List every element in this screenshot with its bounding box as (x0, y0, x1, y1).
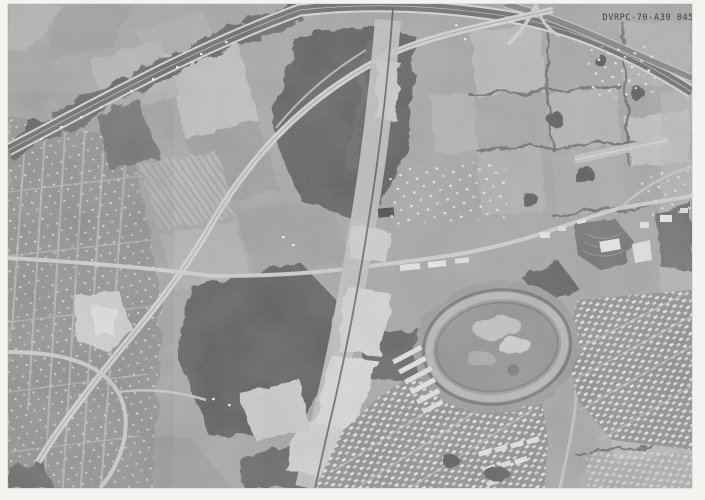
aerial-photo-sheet: DVRPC-70-A39 045 (0, 0, 705, 500)
film-grain (8, 4, 692, 488)
photo-content: DVRPC-70-A39 045 (8, 4, 700, 500)
photo-id-label: DVRPC-70-A39 045 (603, 13, 694, 23)
aerial-photo: DVRPC-70-A39 045 (0, 0, 705, 500)
